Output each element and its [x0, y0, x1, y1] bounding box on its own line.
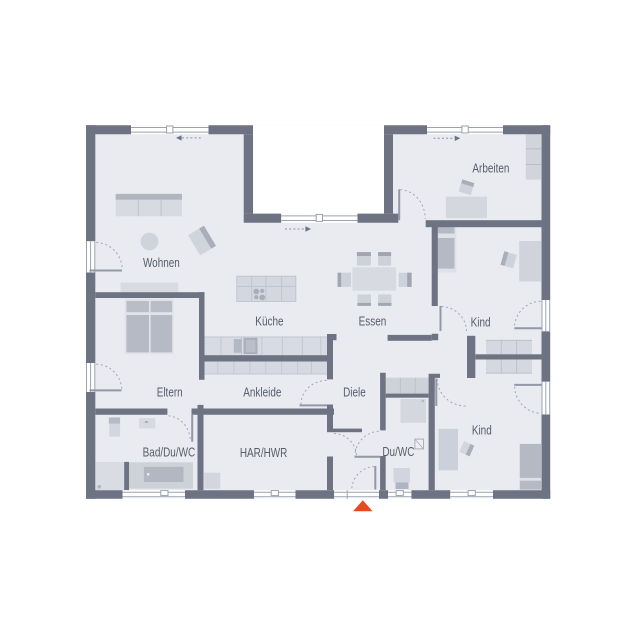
- svg-text:Du/WC: Du/WC: [382, 446, 414, 459]
- svg-text:Diele: Diele: [343, 387, 366, 400]
- svg-text:HAR/HWR: HAR/HWR: [240, 447, 288, 460]
- svg-text:Küche: Küche: [255, 316, 283, 329]
- svg-text:Kind: Kind: [472, 425, 492, 438]
- svg-text:Wohnen: Wohnen: [143, 257, 180, 270]
- svg-text:Essen: Essen: [359, 316, 387, 329]
- svg-text:Kind: Kind: [471, 316, 491, 329]
- svg-text:Arbeiten: Arbeiten: [472, 163, 509, 176]
- svg-text:Eltern: Eltern: [157, 387, 183, 400]
- svg-text:Bad/Du/WC: Bad/Du/WC: [143, 446, 196, 459]
- svg-text:Ankleide: Ankleide: [243, 387, 281, 400]
